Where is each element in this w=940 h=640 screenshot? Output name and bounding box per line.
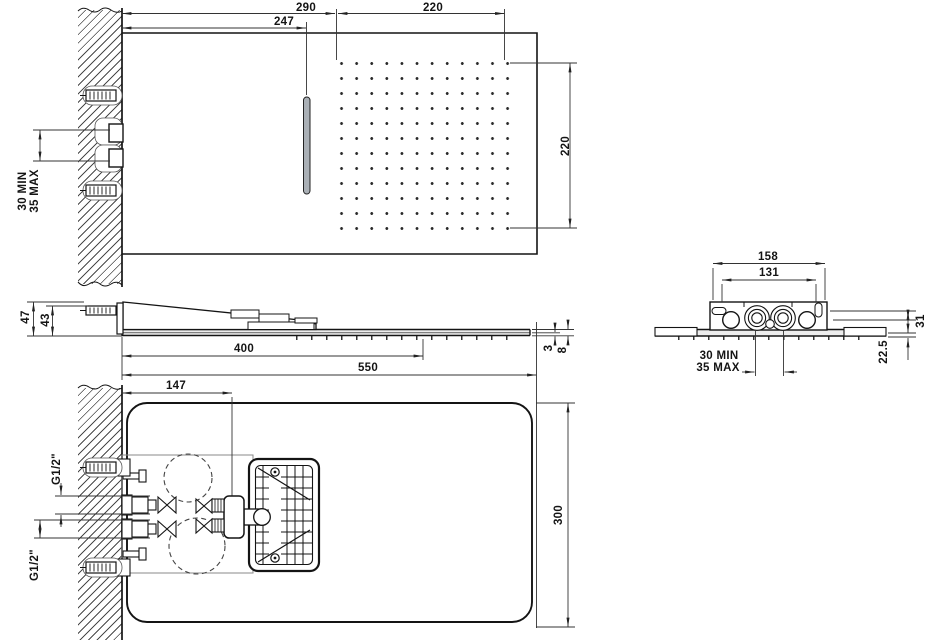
connector-bulge	[254, 509, 271, 526]
view-top	[33, 8, 577, 287]
dim-label-end-offset-min: 30 MIN	[696, 350, 742, 362]
dim-label-22-5: 22.5	[878, 337, 890, 367]
waterfall-slot	[304, 97, 311, 194]
shower-installation-drawing: 290 247 220 220 30 MIN 35 MAX 47 43 400 …	[0, 0, 940, 640]
hose-loop-dashed	[164, 454, 212, 502]
wall-break-line	[78, 385, 122, 389]
wall-anchor-screw	[80, 90, 116, 101]
valve-assembly-upper	[122, 495, 224, 515]
wall-anchor-screw	[80, 462, 116, 473]
dim-label-220-v: 220	[560, 126, 572, 166]
dim-label-g12-top: G1/2"	[51, 452, 63, 486]
dim-label-158: 158	[748, 251, 788, 263]
dim-label-31: 31	[915, 308, 927, 334]
dim-label-offset-min: 30 MIN	[17, 168, 29, 214]
dim-label-300: 300	[553, 495, 565, 535]
dim-label-220-h: 220	[413, 2, 453, 14]
dim-label-47: 47	[20, 302, 32, 332]
mixer-connector	[224, 496, 244, 538]
dim-label-3: 3	[543, 338, 555, 358]
wall-anchor-screw	[80, 562, 116, 573]
plate-end-cap	[844, 328, 886, 337]
dim-label-400: 400	[224, 343, 264, 355]
dim-label-147: 147	[156, 380, 196, 392]
dim-label-8: 8	[557, 340, 569, 360]
view-plan	[34, 385, 575, 640]
dim-label-131: 131	[749, 267, 789, 279]
view-end	[655, 264, 916, 377]
dim-label-290: 290	[286, 2, 326, 14]
technical-drawing-linework	[0, 0, 940, 640]
dim-label-end-offset-max: 35 MAX	[695, 362, 741, 374]
dim-label-550: 550	[348, 362, 388, 374]
wall-anchor-screw	[80, 306, 116, 315]
bracket-hole	[799, 312, 816, 329]
wall-break-line	[78, 282, 122, 286]
supply-fitting	[109, 124, 123, 142]
wall-break-line	[78, 8, 122, 12]
supply-fitting	[109, 149, 123, 167]
plate-end-cap	[655, 328, 697, 337]
dim-label-43: 43	[40, 305, 52, 335]
dim-label-g12-bottom: G1/2"	[29, 548, 41, 582]
shower-panel-outline-top	[122, 33, 537, 254]
dim-label-offset-max: 35 MAX	[29, 168, 41, 214]
bracket-hole	[723, 312, 740, 329]
wall-bracket-plate	[117, 303, 123, 334]
wall-anchor-screw	[80, 185, 116, 196]
shower-panel-outline-plan	[127, 403, 532, 622]
valve-assembly-lower	[122, 519, 224, 539]
dim-label-247: 247	[264, 16, 304, 28]
